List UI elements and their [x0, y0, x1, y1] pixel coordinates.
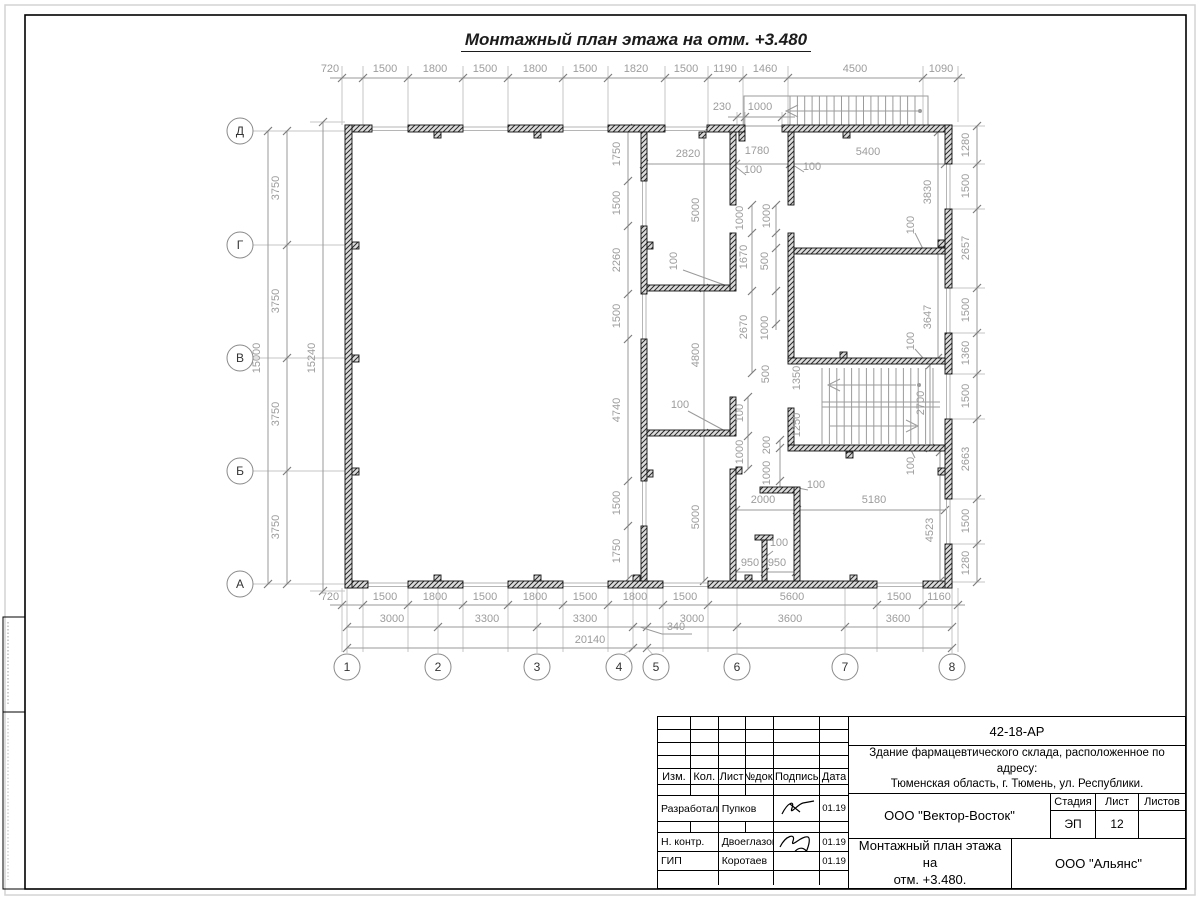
dim-label: 1280: [960, 551, 972, 575]
ncontrol-date: 01.19: [820, 833, 848, 851]
dim-label: 1500: [611, 304, 623, 328]
axis-number: 1: [344, 660, 351, 674]
dim-label: 4800: [690, 343, 702, 367]
gip-row: ГИП Коротаев 01.19: [658, 852, 848, 871]
dim-label: 1000: [734, 206, 746, 230]
title-block: Изм. Кол. Лист №док. Подпись Дата Разраб…: [657, 716, 1186, 889]
dim-label: 1800: [423, 63, 447, 75]
dim-label: 1160: [927, 591, 951, 603]
dim-label: 1500: [373, 591, 397, 603]
drawing-sheet: 7201500180015001800150018201500119014604…: [0, 0, 1200, 900]
dim-label: 3750: [270, 402, 282, 426]
dim-label: 1090: [929, 63, 953, 75]
dim-label: 1500: [960, 509, 972, 533]
axis-letter: В: [236, 351, 244, 365]
dim-label: 5180: [862, 494, 886, 506]
dim-label: 950: [768, 557, 786, 569]
role-label: ГИП: [658, 852, 719, 870]
sheet-number: 12: [1096, 811, 1139, 838]
dim-label: 1000: [761, 461, 773, 485]
dim-label: 100: [905, 332, 917, 350]
design-organization: ООО "Вектор-Восток": [849, 794, 1051, 838]
dim-label: 100: [803, 161, 821, 173]
axis-letter: Г: [237, 238, 244, 252]
dim-label: 2700: [915, 391, 927, 415]
dim-label: 500: [760, 365, 772, 383]
dim-label: 1500: [573, 591, 597, 603]
dim-label: 1190: [713, 63, 737, 75]
dim-label: 1800: [523, 591, 547, 603]
role-label: Разработал: [658, 796, 719, 821]
dim-label: 2663: [960, 447, 972, 471]
dim-label: 1000: [748, 101, 772, 113]
axis-number: 8: [949, 660, 956, 674]
axis-number: 4: [616, 660, 623, 674]
dim-label: 1360: [960, 341, 972, 365]
dim-label: 100: [807, 479, 825, 491]
dim-label: 100: [734, 404, 746, 422]
dim-label: 5600: [780, 591, 804, 603]
developer-signature: [774, 796, 820, 821]
dim-label: 1500: [960, 174, 972, 198]
dim-label: 3600: [886, 613, 910, 625]
col-kol: Кол.: [691, 769, 719, 784]
dim-label: 1500: [373, 63, 397, 75]
dim-label: 1800: [623, 591, 647, 603]
dim-label: 3000: [680, 613, 704, 625]
dim-label: 3600: [778, 613, 802, 625]
dim-label: 1780: [745, 145, 769, 157]
dim-label: 1750: [611, 142, 623, 166]
dimension-labels: 7201500180015001800150018201500119014604…: [251, 63, 972, 646]
axis-number: 3: [534, 660, 541, 674]
ncontrol-signature: [774, 833, 820, 851]
document-number: 42-18-АР: [849, 717, 1185, 746]
axis-letter: Б: [236, 464, 244, 478]
dim-label: 100: [905, 216, 917, 234]
dim-label: 1350: [791, 366, 803, 390]
dim-label: 1500: [573, 63, 597, 75]
role-label: Н. контр.: [658, 833, 719, 851]
dim-label: 1500: [960, 384, 972, 408]
window-lines: [368, 127, 950, 587]
dim-label: 3300: [475, 613, 499, 625]
dim-label: 1800: [423, 591, 447, 603]
dim-label: 3750: [270, 176, 282, 200]
dim-label: 4500: [843, 63, 867, 75]
dim-label: 1670: [738, 245, 750, 269]
dim-label: 100: [744, 164, 762, 176]
dim-label: 4523: [924, 518, 936, 542]
dim-label: 3750: [270, 289, 282, 313]
dim-label: 1500: [673, 591, 697, 603]
dim-label: 5000: [690, 198, 702, 222]
dim-label: 100: [668, 252, 680, 270]
gip-signature: [774, 852, 820, 870]
col-podpis: Подпись: [774, 769, 820, 784]
gip-date: 01.19: [820, 852, 848, 870]
dim-label: 1000: [761, 204, 773, 228]
dim-label: 3750: [270, 515, 282, 539]
dim-label: 2670: [738, 315, 750, 339]
stage-sheet-grid: Стадия Лист Листов ЭП 12: [1051, 794, 1185, 838]
dim-label: 100: [905, 457, 917, 475]
dim-label: 3000: [380, 613, 404, 625]
axis-letter: Д: [236, 124, 244, 138]
stage-label: Стадия: [1051, 794, 1096, 810]
sheet-label: Лист: [1096, 794, 1139, 810]
col-izm: Изм.: [658, 769, 691, 784]
axis-letter: А: [236, 577, 244, 591]
dim-label: 100: [770, 537, 788, 549]
dim-label: 1000: [759, 316, 771, 340]
col-list: Лист: [719, 769, 746, 784]
stage-value: ЭП: [1051, 811, 1096, 838]
axis-number: 6: [734, 660, 741, 674]
dim-label: 1500: [960, 298, 972, 322]
col-data: Дата: [820, 769, 848, 784]
dim-label: 1500: [611, 191, 623, 215]
project-description: Здание фармацевтического склада, располо…: [849, 746, 1185, 794]
title-block-left-table: Изм. Кол. Лист №док. Подпись Дата Разраб…: [658, 717, 849, 888]
dim-label: 5400: [856, 146, 880, 158]
axis-number: 2: [435, 660, 442, 674]
developer-name: Пупков: [719, 796, 775, 821]
dim-label: 2657: [960, 236, 972, 260]
sheets-label: Листов: [1139, 794, 1185, 810]
dim-label: 720: [321, 591, 339, 603]
gip-name: Коротаев: [719, 852, 775, 870]
dim-label: 1800: [523, 63, 547, 75]
dim-label: 1500: [473, 591, 497, 603]
axis-number: 5: [653, 660, 660, 674]
dim-label: 1500: [887, 591, 911, 603]
sheet-title: Монтажный план этажа наотм. +3.480.: [849, 839, 1012, 888]
sheets-total: [1139, 811, 1185, 838]
client-company: ООО "Альянс": [1012, 839, 1185, 888]
developer-date: 01.19: [820, 796, 848, 821]
axis-number: 7: [842, 660, 849, 674]
dim-label: 720: [321, 63, 339, 75]
ncontrol-name: Двоеглазов: [719, 833, 775, 851]
ncontrol-row: Н. контр. Двоеглазов 01.19: [658, 833, 848, 852]
dim-label: 1280: [960, 133, 972, 157]
dim-label: 500: [759, 252, 771, 270]
dim-label: 5000: [690, 505, 702, 529]
dim-label: 3300: [573, 613, 597, 625]
dim-label: 1820: [624, 63, 648, 75]
dim-label: 2260: [611, 248, 623, 272]
dim-label: 3647: [922, 305, 934, 329]
drawing-title: Монтажный план этажа на отм. +3.480: [436, 30, 836, 50]
dim-label: 1250: [791, 413, 803, 437]
revision-header-row: Изм. Кол. Лист №док. Подпись Дата: [658, 769, 848, 785]
dim-label: 950: [741, 557, 759, 569]
dim-label: 1500: [674, 63, 698, 75]
developer-row: Разработал Пупков 01.19: [658, 796, 848, 822]
dim-label: 1000: [734, 440, 746, 464]
dim-label: 4740: [611, 398, 623, 422]
dim-label: 1750: [611, 539, 623, 563]
dim-label: 1460: [753, 63, 777, 75]
dim-label: 1500: [611, 491, 623, 515]
title-block-right: 42-18-АР Здание фармацевтического склада…: [849, 717, 1185, 888]
dim-label: 230: [713, 101, 731, 113]
dim-label: 100: [671, 399, 689, 411]
dim-label: 1500: [473, 63, 497, 75]
col-ndok: №док.: [746, 769, 775, 784]
dim-label: 2820: [676, 148, 700, 160]
dim-label: 15240: [306, 343, 318, 374]
dim-label: 200: [761, 436, 773, 454]
walls: [345, 125, 952, 588]
left-stamp: [3, 617, 25, 889]
dim-label: 20140: [575, 634, 606, 646]
dim-label: 3830: [922, 180, 934, 204]
dim-label: 2000: [751, 494, 775, 506]
